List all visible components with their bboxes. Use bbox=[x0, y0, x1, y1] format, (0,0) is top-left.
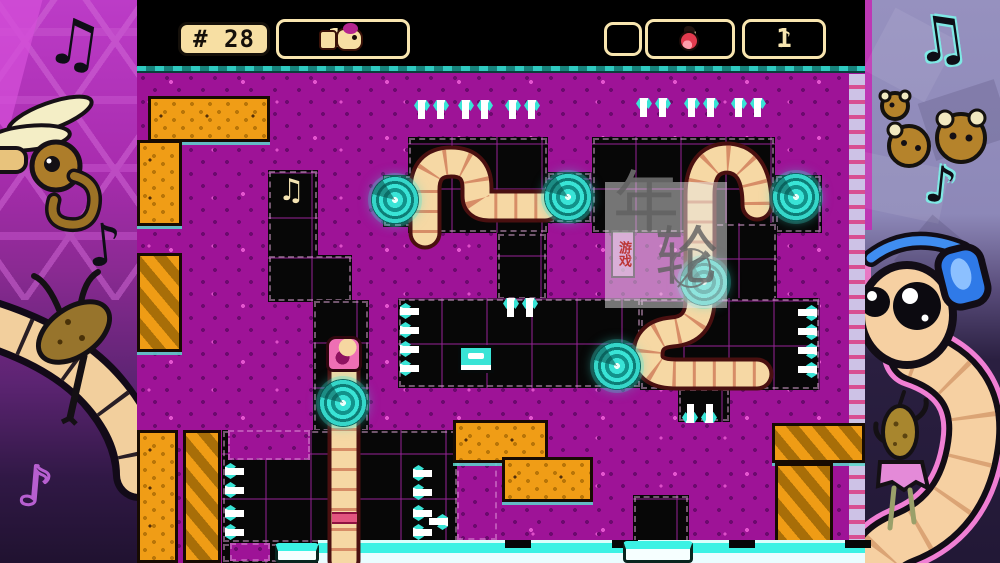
worm-band bbox=[332, 512, 357, 524]
needle-spike-icon bbox=[225, 463, 265, 479]
biting-bug-icon bbox=[0, 250, 137, 430]
music-note-pickup: ♫ bbox=[278, 176, 305, 206]
watermark-overlay: 年 轮 游戏 bbox=[605, 182, 727, 308]
apple-icon bbox=[679, 27, 701, 51]
needle-spike-icon bbox=[684, 98, 700, 138]
needle-spike-icon bbox=[400, 360, 440, 376]
portal-swirl-icon bbox=[772, 173, 820, 221]
needle-spike-icon bbox=[703, 98, 719, 138]
needle-spike-icon bbox=[777, 343, 817, 359]
watermark-tag: 游戏 bbox=[611, 230, 635, 278]
apple-count-box: 0 bbox=[645, 19, 735, 59]
portal-swirl-icon bbox=[319, 379, 367, 427]
worm-icon bbox=[319, 26, 367, 52]
level-number-badge: # 28 bbox=[178, 22, 270, 56]
needle-spike-icon bbox=[414, 100, 430, 140]
needle-spike-icon bbox=[522, 298, 538, 338]
needle-spike-icon bbox=[400, 341, 440, 357]
watermark-circle-mark bbox=[671, 248, 711, 288]
needle-spike-icon bbox=[400, 322, 440, 338]
level-sprites-layer: ♫ bbox=[137, 0, 865, 563]
empty-slot-box bbox=[604, 22, 642, 56]
needle-spike-icon bbox=[524, 100, 540, 140]
needle-spike-icon bbox=[777, 362, 817, 378]
needle-spike-icon bbox=[655, 98, 671, 138]
right-border-art: ♫ ♪ ♪ bbox=[865, 0, 1000, 563]
needle-spike-icon bbox=[408, 514, 448, 530]
needle-spike-icon bbox=[400, 303, 440, 319]
needle-spike-icon bbox=[636, 98, 652, 138]
needle-spike-icon bbox=[505, 100, 521, 140]
note-count-box: ♪ 1 bbox=[742, 19, 826, 59]
music-note-icon: ♪ bbox=[776, 25, 791, 53]
needle-spike-icon bbox=[477, 100, 493, 140]
portal-swirl-icon bbox=[371, 176, 419, 224]
needle-spike-icon bbox=[777, 305, 817, 321]
needle-spike-icon bbox=[503, 298, 519, 338]
needle-spike-icon bbox=[433, 100, 449, 140]
dancing-bug-icon bbox=[870, 390, 950, 535]
game-playfield[interactable]: ♫ bbox=[137, 0, 865, 563]
needle-spike-icon bbox=[458, 100, 474, 140]
needle-spike-icon bbox=[225, 482, 265, 498]
portal-swirl-icon bbox=[593, 342, 641, 390]
needle-spike-icon bbox=[413, 484, 453, 500]
needle-spike-icon bbox=[731, 98, 747, 138]
game-capture-stage: ♫ ♪ ♪ ♫ bbox=[0, 0, 1000, 563]
needle-spike-icon bbox=[682, 383, 698, 423]
worm-count-box: 11 bbox=[276, 19, 410, 59]
needle-spike-icon bbox=[750, 98, 766, 138]
bug-trio-icon bbox=[873, 88, 998, 183]
ice-block-item bbox=[458, 345, 494, 373]
music-note-icon: ♫ bbox=[909, 4, 973, 73]
left-border-art: ♫ ♪ ♪ bbox=[0, 0, 137, 563]
needle-spike-icon bbox=[701, 383, 717, 423]
needle-spike-icon bbox=[777, 324, 817, 340]
hud-bar: # 28 11 0 ♪ 1 bbox=[137, 0, 865, 66]
needle-spike-icon bbox=[225, 505, 265, 521]
needle-spike-icon bbox=[225, 524, 265, 540]
worm-head-icon bbox=[326, 336, 362, 372]
portal-swirl-icon bbox=[544, 173, 592, 221]
needle-spike-icon bbox=[413, 465, 453, 481]
